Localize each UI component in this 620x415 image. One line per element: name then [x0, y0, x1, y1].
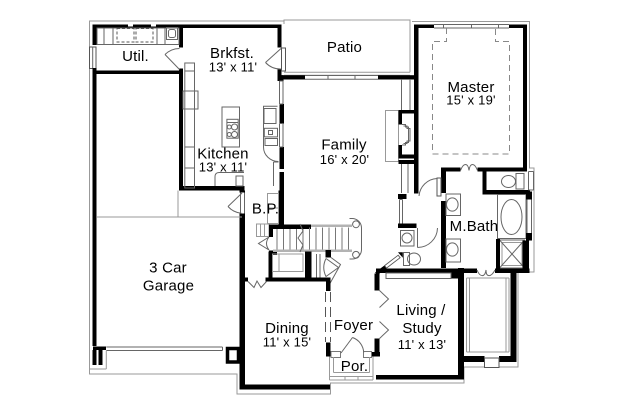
svg-text:13' x 11': 13' x 11'	[209, 60, 257, 75]
svg-text:11' x 13': 11' x 13'	[398, 337, 446, 352]
svg-text:Study: Study	[402, 320, 442, 337]
svg-text:11' x 15': 11' x 15'	[263, 335, 311, 350]
svg-text:Por.: Por.	[341, 358, 368, 375]
svg-text:Living /: Living /	[396, 302, 446, 319]
svg-text:Foyer: Foyer	[334, 317, 373, 334]
svg-text:Patio: Patio	[327, 39, 362, 56]
svg-text:Family: Family	[321, 137, 367, 154]
svg-text:15' x 19': 15' x 19'	[446, 93, 495, 108]
svg-text:16' x 20': 16' x 20'	[320, 152, 369, 167]
svg-text:Util.: Util.	[122, 48, 149, 65]
svg-text:B.P.: B.P.	[252, 201, 279, 218]
svg-text:M.Bath: M.Bath	[450, 218, 499, 235]
svg-text:Garage: Garage	[143, 278, 194, 295]
svg-text:13' x 11': 13' x 11'	[199, 160, 247, 175]
svg-text:3 Car: 3 Car	[149, 260, 187, 277]
